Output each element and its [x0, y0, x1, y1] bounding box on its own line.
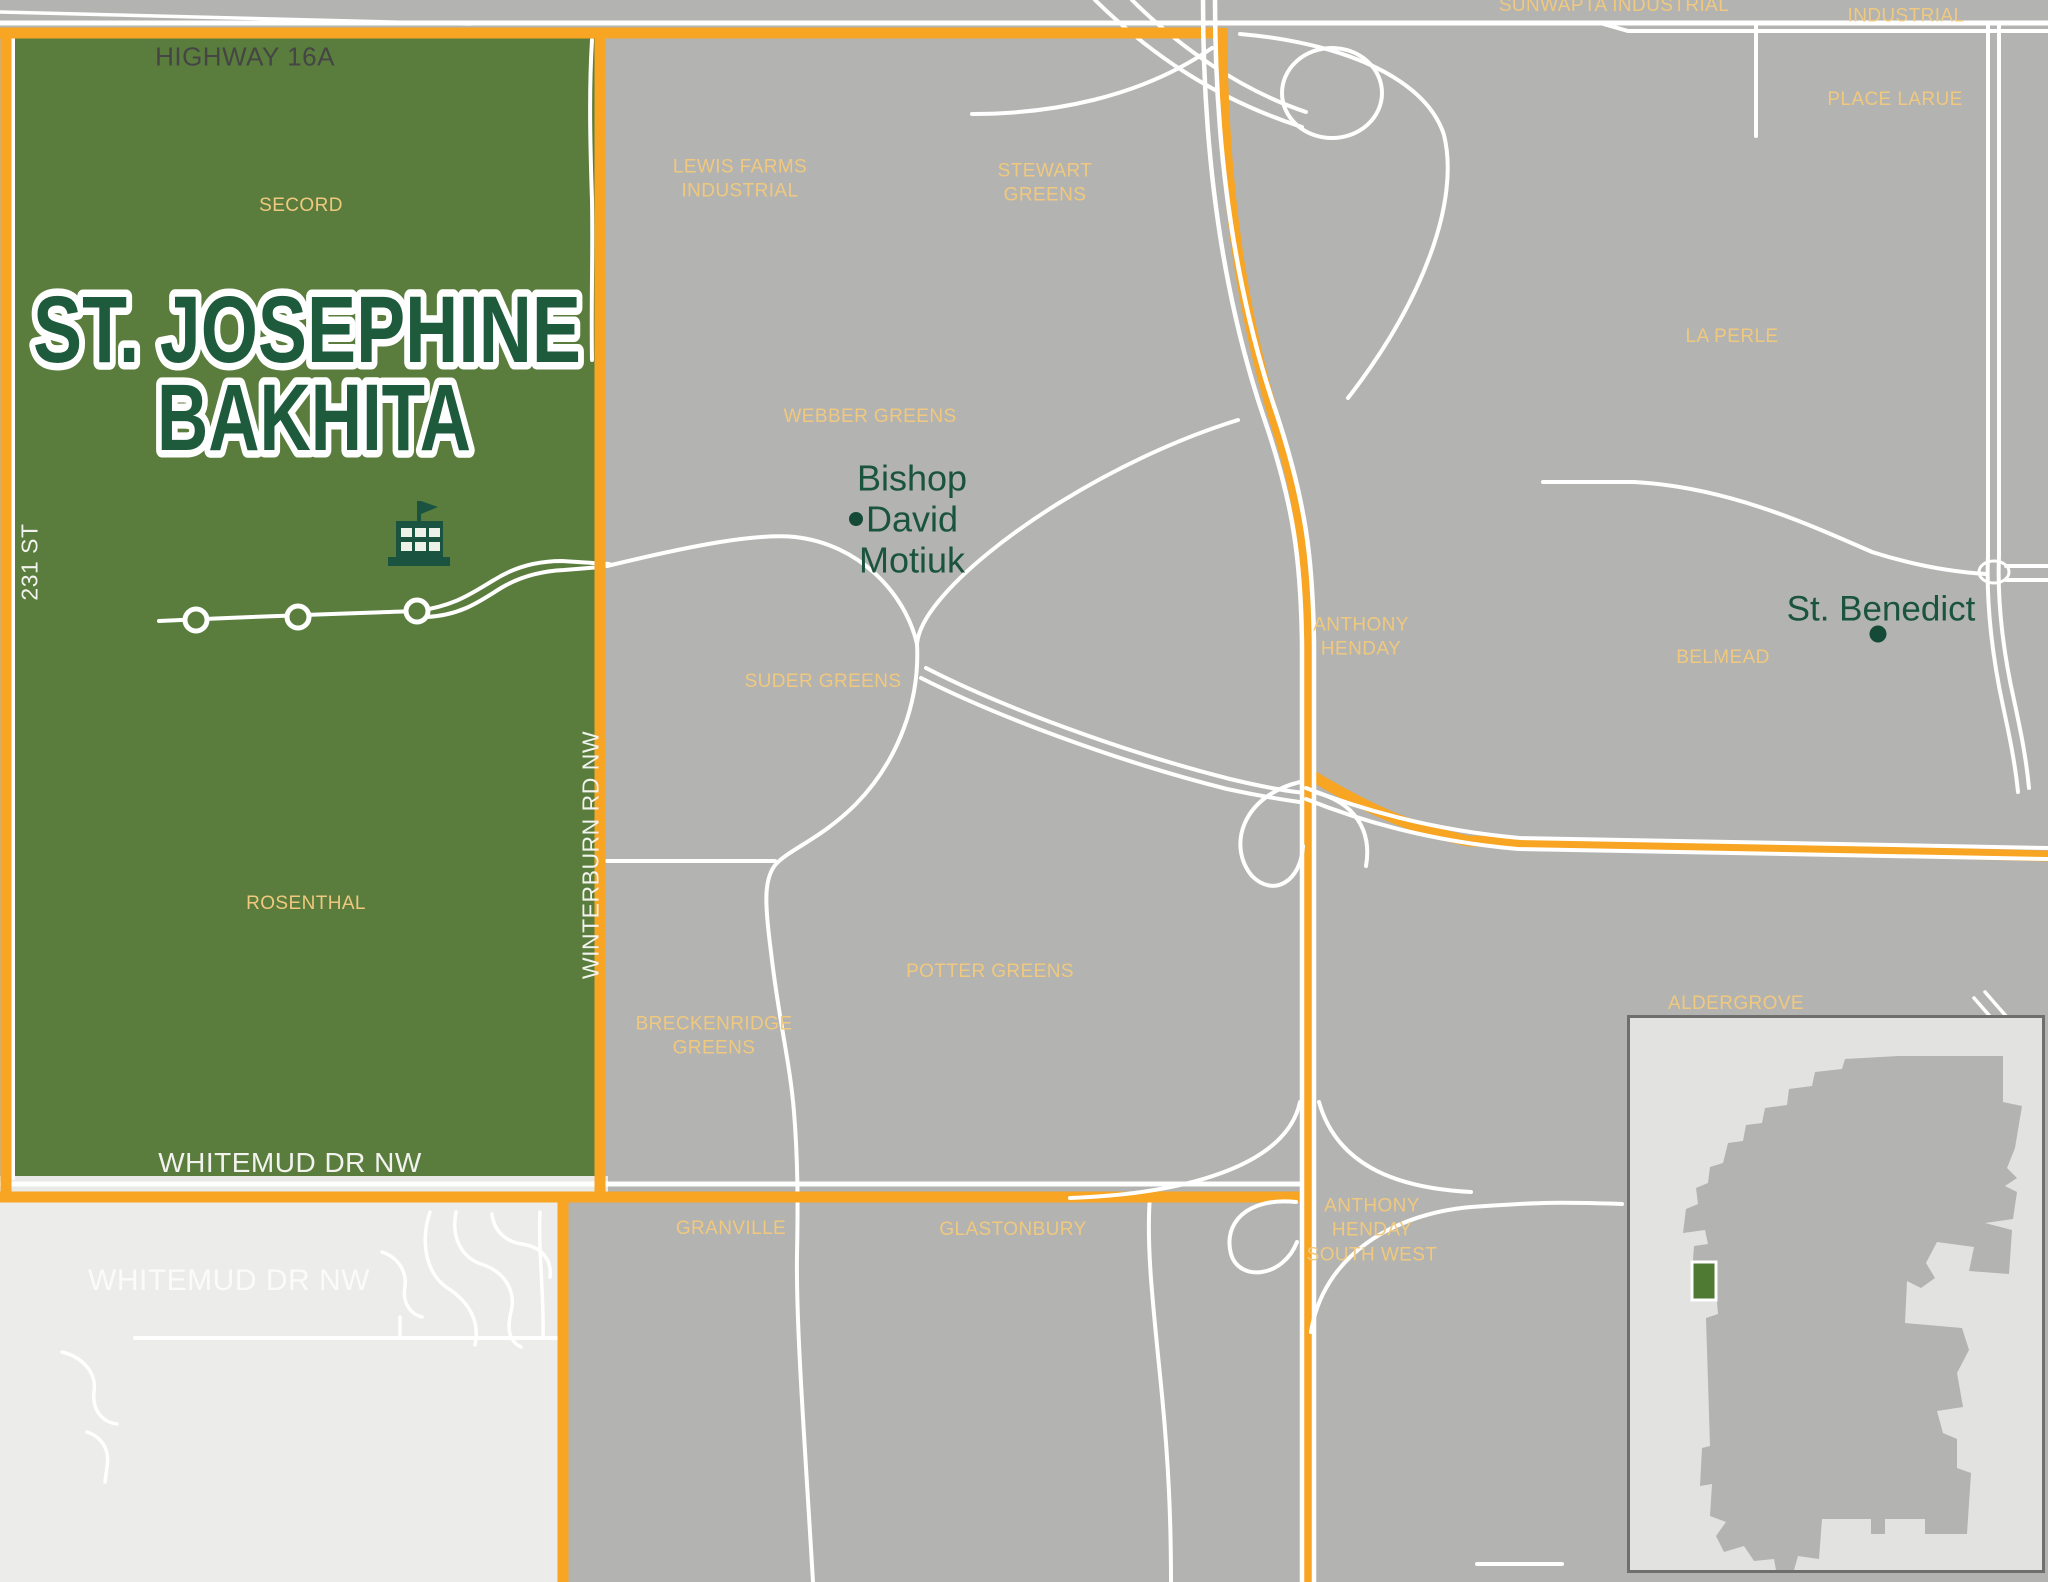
neighborhood-label-la-perle: LA PERLE — [1686, 325, 1779, 349]
neighborhood-label-potter-greens: POTTER GREENS — [906, 960, 1074, 984]
school-label-bishop-david-motiuk: Bishop David Motiuk — [857, 458, 967, 581]
boundary-school-title: ST. JOSEPHINE BAKHITA — [33, 277, 581, 471]
school-building-icon — [388, 501, 450, 566]
attendance-boundary-map: ST. JOSEPHINE BAKHITA HIGHWAY 16A 231 ST… — [0, 0, 2048, 1582]
boundary-school-title-line2: BAKHITA — [157, 365, 471, 471]
neighborhood-label-stewart-greens: STEWART GREENS — [998, 160, 1093, 209]
roundabout-icons — [185, 600, 428, 631]
road-label-highway-16a: HIGHWAY 16A — [155, 40, 335, 73]
neighborhood-label-suder-greens: SUDER GREENS — [745, 670, 902, 694]
neighborhood-label-breckenridge-greens: BRECKENRIDGE GREENS — [636, 1013, 793, 1062]
neighborhood-label-lewis-farms-industrial: LEWIS FARMS INDUSTRIAL — [673, 156, 807, 205]
city-outline-map — [1630, 1018, 2042, 1570]
inset-boundary-highlight — [1692, 1262, 1716, 1300]
neighborhood-label-webber-greens: WEBBER GREENS — [783, 405, 956, 429]
school-label-st-benedict: St. Benedict — [1787, 588, 1976, 633]
city-outline-shape — [1683, 1056, 2022, 1570]
neighborhood-label-granville: GRANVILLE — [676, 1217, 786, 1241]
neighborhood-label-sunwapta-industrial: SUNWAPTA INDUSTRIAL — [1499, 0, 1729, 18]
neighborhood-label-aldergrove: ALDERGROVE — [1668, 992, 1804, 1016]
neighborhood-label-anthony-henday-south-west: ANTHONY HENDAY SOUTH WEST — [1307, 1195, 1438, 1268]
neighborhood-label-secord: SECORD — [259, 194, 343, 218]
neighborhood-label-glastonbury: GLASTONBURY — [939, 1218, 1086, 1242]
road-label-whitemud-lower: WHITEMUD DR NW — [88, 1262, 370, 1300]
road-label-whitemud-upper: WHITEMUD DR NW — [158, 1145, 422, 1181]
neighborhood-label-morin-industrial: MORIN INDUSTRIAL — [1835, 0, 1977, 29]
neighborhood-label-anthony-henday: ANTHONY HENDAY — [1313, 614, 1409, 663]
road-label-231-st: 231 ST — [15, 523, 44, 600]
city-overview-inset — [1627, 1015, 2045, 1573]
neighborhood-label-belmead: BELMEAD — [1676, 646, 1770, 670]
neighborhood-label-rosenthal: ROSENTHAL — [246, 892, 366, 916]
neighborhood-label-place-larue: PLACE LARUE — [1827, 88, 1962, 112]
road-label-winterburn-rd: WINTERBURN RD NW — [576, 731, 605, 979]
